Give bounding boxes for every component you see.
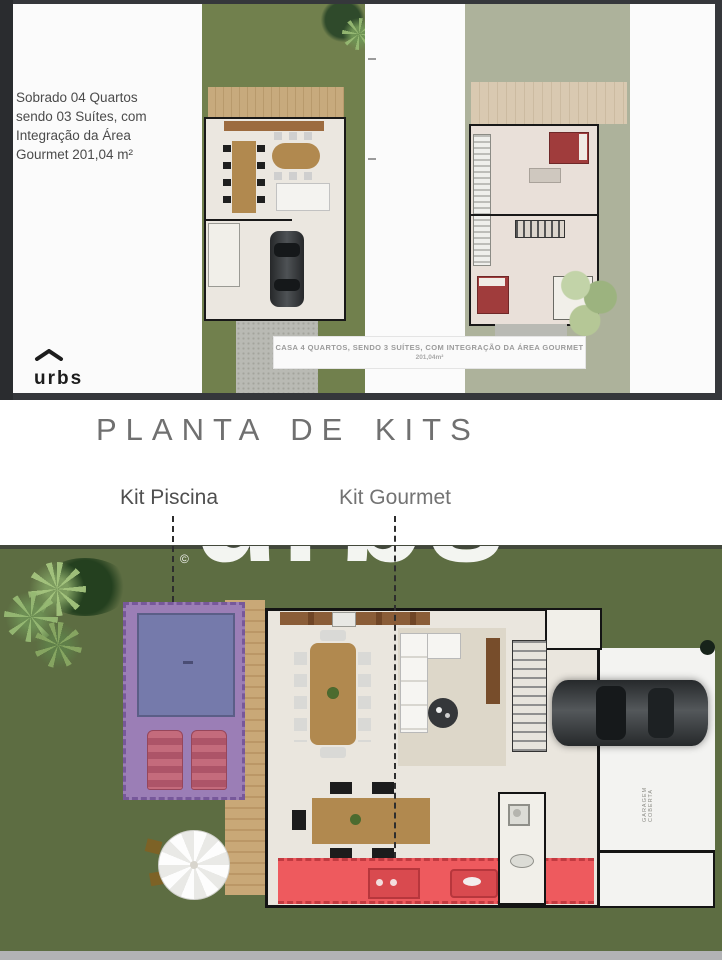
chairs [274, 172, 318, 180]
pergola [473, 134, 491, 266]
washer [508, 804, 530, 826]
bathroom [545, 608, 602, 650]
shrub-icon [700, 640, 715, 655]
garage-label: GARAGEM COBERTA [642, 752, 654, 822]
interior-wall [206, 219, 292, 221]
copyright-icon: © [180, 552, 189, 566]
chair [320, 630, 346, 641]
chair [320, 747, 346, 758]
sofa [276, 183, 330, 211]
car [270, 231, 304, 307]
page: Sobrado 04 Quartos sendo 03 Suítes, com … [0, 0, 722, 960]
interior-wall [471, 214, 597, 216]
logo-text: urbs [34, 368, 134, 390]
walkway [597, 853, 715, 908]
floor-plan-upper [465, 4, 630, 393]
floor-plan-ground [202, 4, 365, 393]
kitchen-island [312, 798, 430, 844]
sink [332, 612, 356, 627]
top-plans-board: Sobrado 04 Quartos sendo 03 Suítes, com … [0, 0, 722, 400]
plan-description: Sobrado 04 Quartos sendo 03 Suítes, com … [16, 88, 170, 165]
sun-lounger [191, 730, 227, 790]
cooktop [368, 868, 420, 899]
long-table [232, 141, 256, 213]
chairs [274, 132, 318, 140]
bottom-edge [0, 951, 722, 960]
wood-deck [208, 87, 344, 117]
stairs [515, 220, 565, 238]
dining-table [310, 643, 356, 745]
side-table [428, 698, 458, 728]
chairs [223, 145, 231, 209]
board-left-edge [0, 0, 13, 400]
laundry-room [498, 792, 546, 905]
bed [477, 276, 509, 314]
kit-piscina-label: Kit Piscina [93, 486, 245, 510]
dining-table [272, 143, 320, 169]
chairs [294, 652, 307, 742]
caption-box: CASA 4 QUARTOS, SENDO 3 SUÍTES, COM INTE… [273, 336, 586, 369]
palm-icon [342, 18, 365, 50]
kitchen-counter [224, 121, 324, 131]
bathroom [208, 223, 240, 287]
sink [450, 869, 498, 898]
watermark-text: urbs [192, 546, 508, 582]
sink [510, 854, 534, 868]
chairs [358, 652, 371, 742]
dimension-tick [368, 58, 376, 60]
balcony-deck [471, 82, 627, 124]
dimension-tick [368, 158, 376, 160]
sun-lounger [147, 730, 183, 790]
kits-title: PLANTA DE KITS [96, 412, 480, 448]
tv-cabinet [486, 638, 500, 704]
kit-gourmet-label: Kit Gourmet [316, 486, 474, 510]
umbrella [158, 830, 230, 900]
roof-icon [34, 349, 64, 361]
dresser [529, 168, 561, 183]
leader-line-piscina [172, 516, 174, 602]
chair [292, 810, 306, 830]
leader-line-gourmet [394, 516, 396, 858]
stairs [512, 640, 547, 752]
pool-water [137, 613, 235, 717]
caption-area: 201,04m² [274, 354, 585, 361]
palm-icon [34, 622, 82, 668]
watermark: urbs [188, 546, 518, 582]
sofa-chaise [427, 633, 461, 659]
gourmet-counter-red [278, 858, 594, 904]
bushes [557, 262, 619, 340]
car [552, 680, 708, 746]
bed [549, 132, 589, 164]
building-outline [204, 117, 346, 321]
caption-title: CASA 4 QUARTOS, SENDO 3 SUÍTES, COM INTE… [274, 343, 585, 352]
urbs-logo: urbs [34, 348, 134, 390]
sofa [400, 633, 428, 733]
chairs [257, 145, 265, 209]
